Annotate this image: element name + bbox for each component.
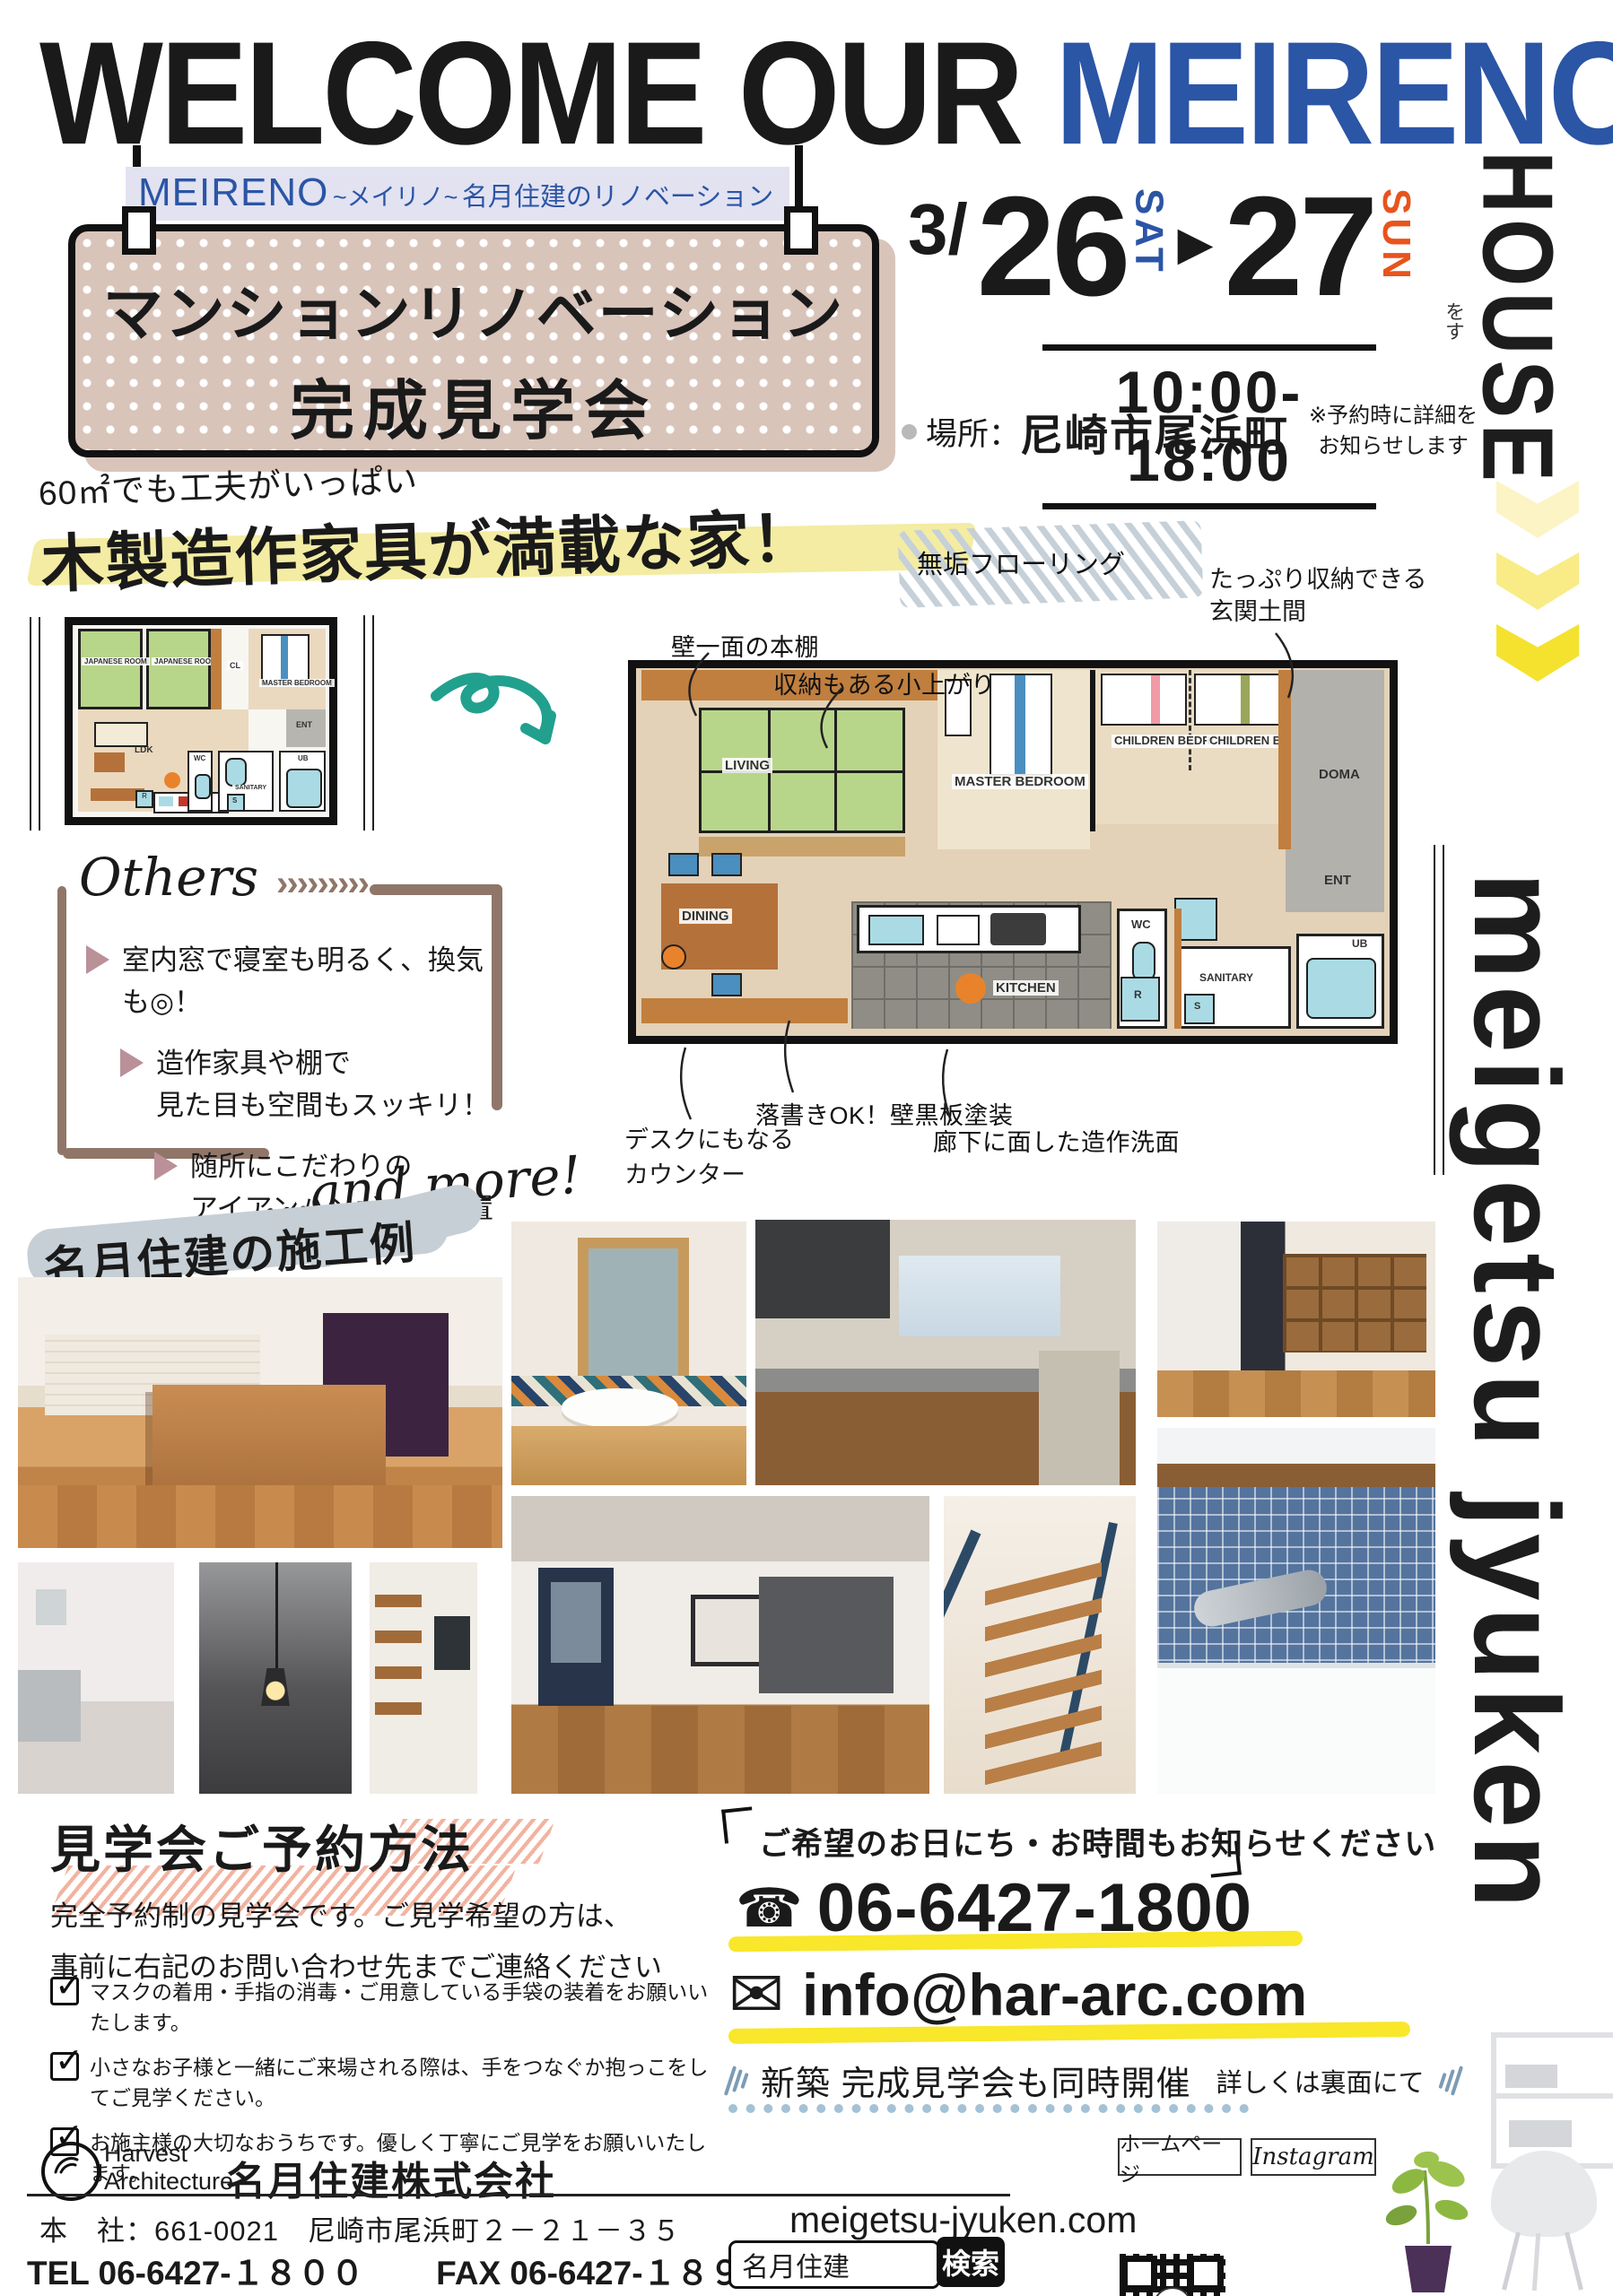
headline: 60㎡でも工夫がいっぱい 木製造作家具が満載な家！ [38,439,817,605]
room-label: CL [227,661,243,670]
checkbox-icon [50,2052,79,2081]
note-genkan-line1: たっぷり収納できる [1209,563,1426,596]
speed-line-icon [740,2072,748,2088]
window-frame [434,1616,470,1670]
brand-badge-subtitle: 名月住建のリノベーション [462,183,773,212]
chevron-down-icon [1496,552,1579,610]
qr-code-homepage[interactable] [1118,2252,1227,2296]
chevron-down-icon [1496,481,1579,538]
sink [159,796,173,806]
table [94,752,125,772]
flyer-page: WELCOME OUR MEIRENO HOUSE をす meigetsu jy… [0,0,1613,2296]
room-ub-before: UB [279,751,326,812]
email-address[interactable]: info@har-arc.com [802,1961,1307,2029]
door-glass [551,1582,601,1663]
email-row: ✉ info@har-arc.com [728,1961,1307,2029]
photo-kitchen-window [755,1220,1136,1485]
photo-living-navy-door [511,1496,929,1794]
triangle-bullet-icon [154,1152,178,1180]
others-header: Others ››››››››› [79,847,368,908]
place-note-line1: ※予約時に詳細を [1309,401,1478,431]
chair-leg [1565,2231,1583,2290]
wood-shelves [375,1580,422,1715]
photo-shelf-nook [370,1562,477,1794]
checklist-text: 小さなお子様と一緒にご来場される際は、手をつなぐか抱っこをしてご見学ください。 [90,2050,714,2111]
qr-logo-center [1153,2287,1192,2296]
sketch-line [30,617,31,831]
reservation-title: 見学会ご予約方法 [50,1810,1613,1883]
brand-badge-reading: ~メイリノ~ [333,184,458,211]
floorplan-before: JAPANESE ROOM JAPANESE ROOM CL MASTER BE… [65,617,337,825]
bathtub [286,769,322,808]
brand-badge: MEIRENO ~メイリノ~ 名月住建のリノベーション [126,167,789,221]
renovation-arrow-icon [429,665,572,764]
qr-home-label: ホームページ [1118,2138,1242,2176]
event-date: 3/ 26 SAT ▶ 27 SUN [908,176,1416,317]
room-japanese-1 [78,629,143,709]
chevron-down-icons [1496,481,1579,682]
chair-illustration [1482,2151,1613,2294]
place-note-line2: お知らせします [1309,431,1478,462]
tel[interactable]: TEL 06-6427-１８００ [27,2255,364,2292]
room-label: SANITARY [232,785,269,792]
footer-rule [27,2194,1010,2196]
bracket-left [57,886,66,1155]
room-label: JAPANESE ROOM [82,657,150,665]
event-title-sign: マンションリノベーション 完成見学会 [68,224,879,457]
place-dot-icon [902,424,917,439]
checklist-item: マスクの着用・手指の消毒・ご用意している手袋の装着をお願いいたします。 [50,1975,714,2036]
sketch-line [1443,845,1444,1175]
place-label: 場所： [926,409,1020,455]
page-title-black: WELCOME OUR [39,11,1021,175]
date-arrow-icon: ▶ [1177,217,1213,271]
qr-finder [1121,2256,1157,2292]
bed-stripe [281,636,288,683]
others-item-text: 室内窓で寝室も明るく、換気も◎！ [122,940,508,1023]
others-item-text: 造作家具や棚で 見た目も空間もスッキリ！ [156,1043,490,1126]
shelf-illustration [1491,2032,1613,2169]
lamp-shade [261,1668,290,1706]
photo-pendant-light [199,1562,352,1794]
fridge: R [135,790,153,808]
checklist-item: 小さなお子様と一緒にご来場される際は、手をつなぐか抱っこをしてご見学ください。 [50,2050,714,2111]
photo-corridor-kitchen [18,1562,174,1794]
room-sanitary-before: SANITARY S [218,751,274,812]
toilet [195,774,211,799]
chair-leg [1532,2233,1540,2291]
wall-cabinet [36,1589,66,1625]
logo-text-line2: Architecture [104,2168,233,2196]
event-day2-dow: SUN [1376,188,1416,283]
basin [562,1388,678,1428]
room-master-before [248,629,326,709]
sketch-line [39,617,40,831]
wood-floor [511,1706,929,1794]
checkbox-icon [50,1977,79,2005]
event-place-row: 場所： 尼崎市尾浜町 ※予約時に詳細を お知らせします [902,400,1478,463]
cabinets [18,1670,81,1742]
stair-treads [985,1562,1102,1794]
tel-fax-row: TEL 06-6427-１８００ FAX 06-6427-１８９８ [27,2246,776,2294]
edge-text-fragment: をす [1439,301,1468,341]
phone-icon: ☎ [736,1882,803,1935]
place-note: ※予約時に詳細を お知らせします [1309,401,1478,461]
note-flooring: 無垢フローリング [917,544,1125,581]
chevron-down-icon [1496,624,1579,682]
sign-clip [122,206,156,255]
logo-text-line1: Harvest [104,2140,233,2168]
books [1505,2065,1557,2088]
qr-finder [1188,2256,1224,2292]
leader-lines [574,601,1435,1193]
photo-bathtub-blue-tile [1157,1428,1435,1794]
cord [275,1562,278,1670]
room-label: UB [295,754,311,762]
room-label: S [230,796,240,804]
event-day1-dow: SAT [1129,188,1168,275]
plant-illustration [1374,2145,1482,2294]
event-day1: 26 [977,176,1128,317]
others-title: Others [79,847,258,908]
photo-open-shelf-room [1157,1222,1435,1417]
room-label: LDK [132,745,156,756]
photo-washbasin [511,1222,746,1485]
vertical-brand-word: meigetsu jyuken [1447,872,1586,1915]
photo-dining-purple-wall [18,1277,502,1548]
event-day2: 27 [1224,176,1374,317]
wood-counter [153,1385,386,1501]
bracket-top [370,884,502,895]
photo-steel-stairs [944,1496,1136,1794]
search-input[interactable]: 名月住建 [728,2240,940,2289]
basin [225,758,247,787]
bathtub [1157,1663,1435,1794]
room-label: WC [191,754,208,762]
room-label: JAPANESE ROOM [152,657,220,665]
logo-text: Harvest Architecture [104,2140,233,2196]
shelf-board [1496,2093,1613,2099]
brand-badge-name: MEIRENO [138,170,328,214]
person-icon [164,772,180,788]
chair-shell [1491,2151,1597,2237]
wood-vanity [511,1426,746,1485]
harvest-logo-icon [41,2142,100,2201]
stringer [944,1530,981,1747]
kitchen-block [759,1577,894,1693]
concurrent-sub: 詳しくは裏面にて [1216,2062,1425,2100]
event-title-line2: 完成見学会 [75,358,872,452]
wall-right [1039,1351,1120,1485]
sign-clip [784,206,818,255]
reservation-body-line1: 完全予約制の見学会です。ご見学希望の方は、 [50,1891,662,1942]
range-hood [755,1220,890,1318]
bed [261,634,310,684]
search-button[interactable]: 検索 [937,2237,1005,2287]
room-wc-before: WC [187,751,213,812]
triangle-bullet-icon [120,1048,144,1077]
chevron-right-icons: ››››››››› [276,864,368,904]
place-value: 尼崎市尾浜町 [1020,400,1289,463]
wood-shelving [1283,1254,1426,1352]
window [899,1256,1060,1336]
room-japanese-2 [146,629,211,709]
wood-floor [1157,1370,1435,1417]
triangle-bullet-icon [86,945,109,974]
event-title-line1: マンションリノベーション [75,265,872,352]
sketch-line [372,615,374,831]
sofa [94,722,148,747]
mirror [578,1238,689,1394]
website-url[interactable]: meigetsu-jyuken.com [789,2199,1137,2241]
event-month: 3/ [908,188,968,271]
room-label: MASTER BEDROOM [259,679,335,687]
fax: FAX 06-6427-１８９８ [436,2255,775,2292]
others-item-line: 見た目も空間もスッキリ！ [156,1085,490,1127]
chair-leg [1502,2231,1521,2290]
email-icon: ✉ [728,1961,784,2028]
checklist-text: マスクの着用・手指の消毒・ご用意している手袋の装着をお願いいたします。 [90,1975,714,2036]
room-label: ENT [293,720,315,729]
qr-instagram-label: Instagram [1251,2138,1376,2176]
others-item-line: 造作家具や棚で [156,1043,490,1085]
room-label: R [142,792,147,800]
books [1509,2120,1572,2147]
sketch-line [363,615,365,831]
others-item: 室内窓で寝室も明るく、換気も◎！ [86,940,508,1023]
wood-floor [18,1485,502,1548]
address: 本 社：661-0021 尼崎市尾浜町２－２１－３５ [39,2208,681,2248]
closet-wood [211,629,222,709]
company-name: 名月住建株式会社 [226,2149,556,2206]
others-item: 造作家具や棚で 見た目も空間もスッキリ！ [120,1043,508,1126]
page-title: WELCOME OUR MEIRENO [39,9,1613,178]
dotted-divider [728,2095,1249,2113]
wood-ledge [1157,1464,1435,1487]
